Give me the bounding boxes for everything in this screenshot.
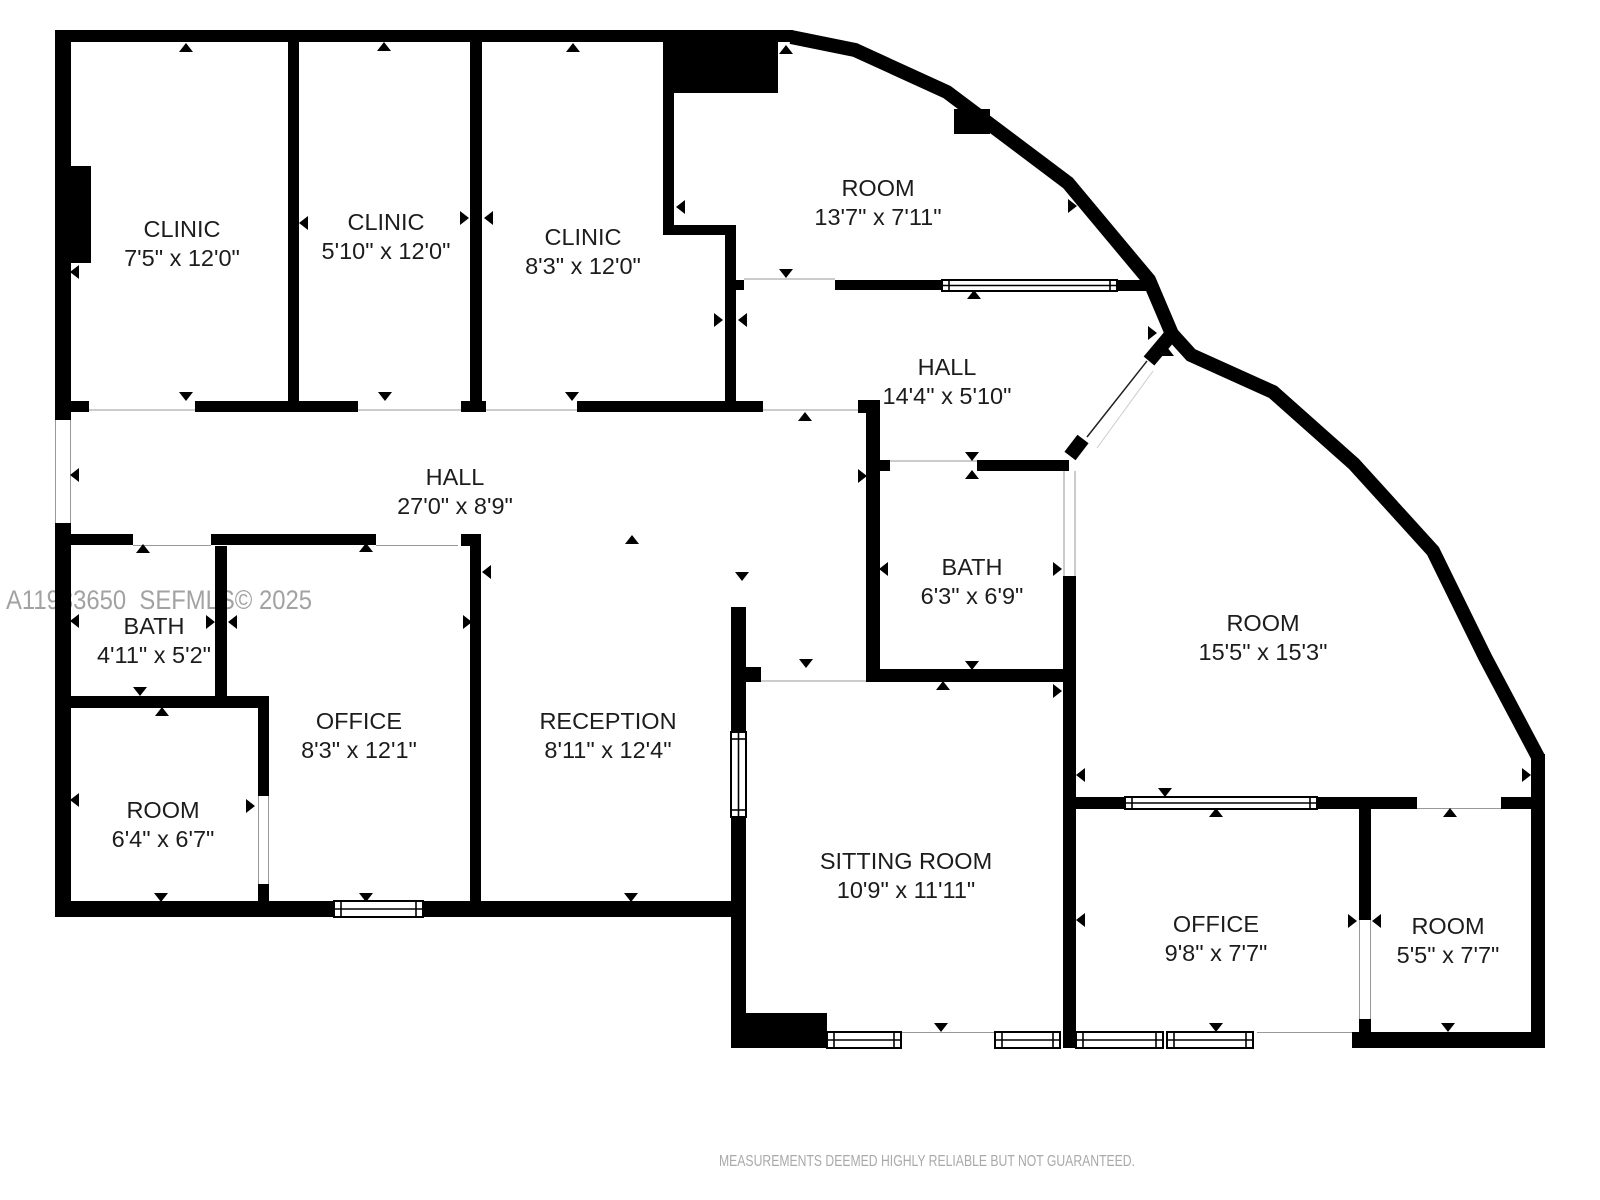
svg-text:ROOM: ROOM — [126, 797, 199, 823]
svg-text:ROOM: ROOM — [1411, 913, 1484, 939]
svg-text:10'9" x 11'11": 10'9" x 11'11" — [837, 877, 975, 903]
svg-text:5'10" x 12'0": 5'10" x 12'0" — [322, 238, 451, 264]
svg-text:A11933650 SEFMLS© 2025: A11933650 SEFMLS© 2025 — [6, 585, 312, 615]
svg-text:HALL: HALL — [426, 464, 485, 490]
svg-text:5'5" x 7'7": 5'5" x 7'7" — [1397, 942, 1500, 968]
svg-text:7'5" x 12'0": 7'5" x 12'0" — [124, 245, 240, 271]
svg-text:6'3" x 6'9": 6'3" x 6'9" — [921, 583, 1024, 609]
svg-text:OFFICE: OFFICE — [316, 708, 402, 734]
svg-text:13'7" x 7'11": 13'7" x 7'11" — [814, 204, 941, 230]
svg-text:8'11" x 12'4": 8'11" x 12'4" — [544, 737, 671, 763]
svg-text:CLINIC: CLINIC — [544, 224, 621, 250]
svg-text:6'4" x 6'7": 6'4" x 6'7" — [112, 826, 215, 852]
svg-text:15'5" x 15'3": 15'5" x 15'3" — [1199, 639, 1328, 665]
svg-text:RECEPTION: RECEPTION — [539, 708, 676, 734]
svg-text:ROOM: ROOM — [1226, 610, 1299, 636]
svg-text:ROOM: ROOM — [841, 175, 914, 201]
svg-text:BATH: BATH — [124, 613, 185, 639]
svg-text:SITTING ROOM: SITTING ROOM — [820, 848, 992, 874]
svg-text:CLINIC: CLINIC — [347, 209, 424, 235]
svg-text:BATH: BATH — [942, 554, 1003, 580]
svg-text:4'11" x 5'2": 4'11" x 5'2" — [97, 642, 211, 668]
svg-text:14'4" x 5'10": 14'4" x 5'10" — [883, 383, 1012, 409]
svg-text:OFFICE: OFFICE — [1173, 911, 1259, 937]
svg-text:27'0" x 8'9": 27'0" x 8'9" — [397, 493, 513, 519]
svg-text:9'8" x 7'7": 9'8" x 7'7" — [1165, 940, 1268, 966]
svg-text:HALL: HALL — [918, 354, 977, 380]
svg-text:8'3" x 12'1": 8'3" x 12'1" — [301, 737, 417, 763]
svg-text:CLINIC: CLINIC — [143, 216, 220, 242]
svg-text:8'3" x 12'0": 8'3" x 12'0" — [525, 253, 641, 279]
svg-text:MEASUREMENTS DEEMED HIGHLY REL: MEASUREMENTS DEEMED HIGHLY RELIABLE BUT … — [719, 1153, 1135, 1170]
